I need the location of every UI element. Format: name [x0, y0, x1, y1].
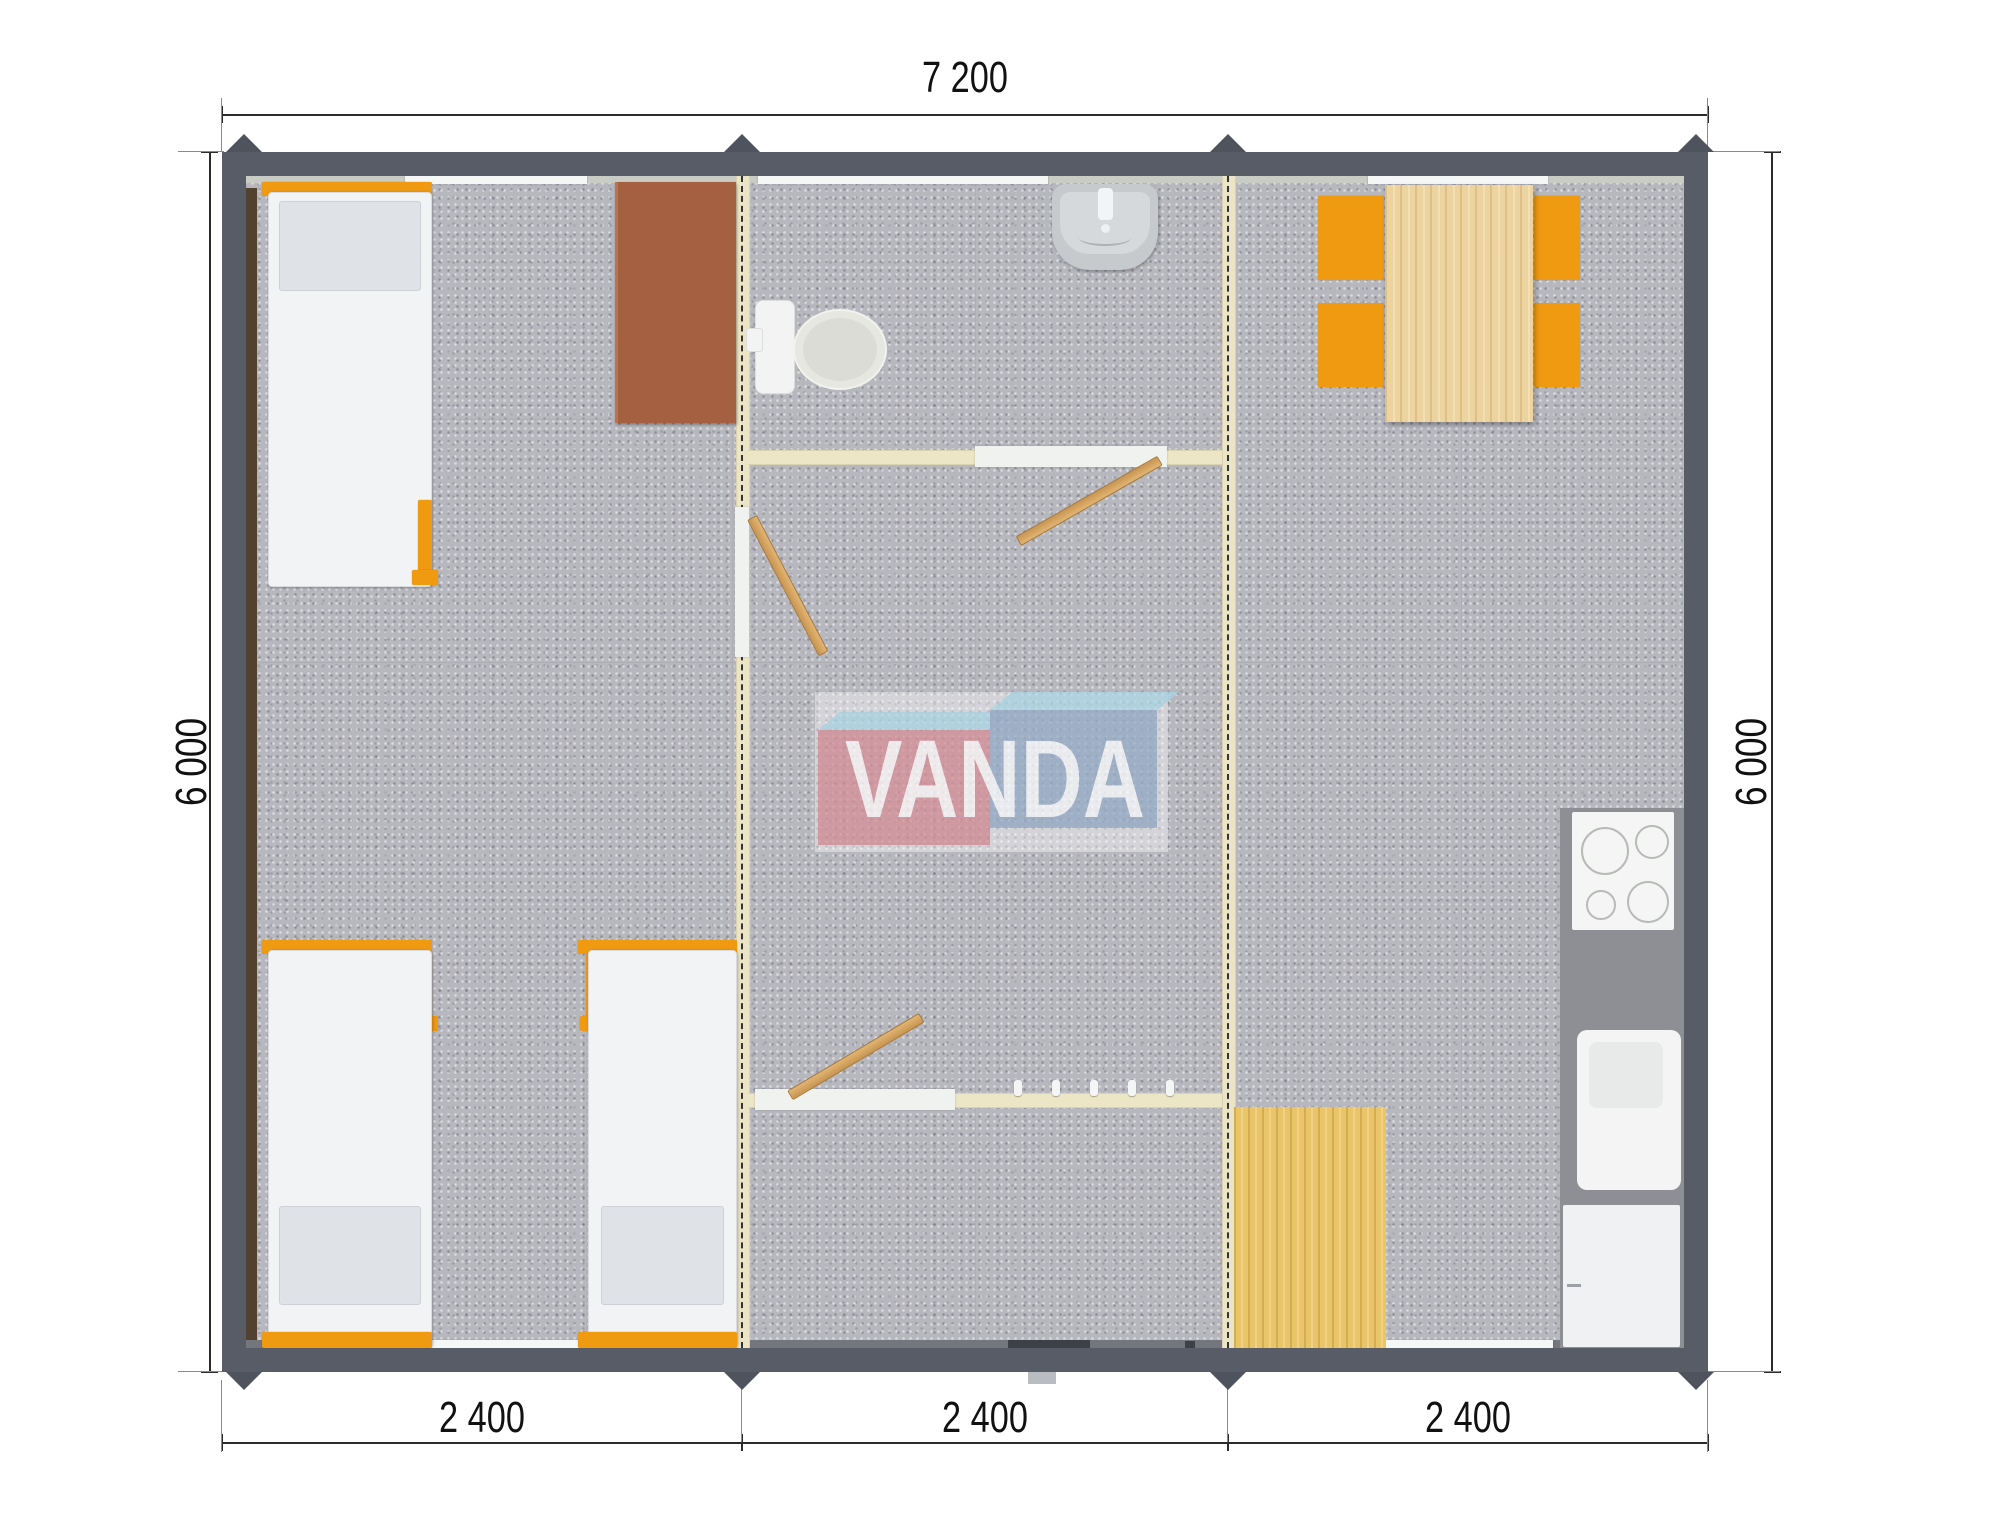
extension-line — [178, 151, 224, 152]
bed-frame-bar — [262, 1332, 432, 1348]
dimension-label-top: 7 200 — [887, 56, 1043, 100]
cabinet-handle — [1567, 1284, 1581, 1287]
fridge-cabinet — [1563, 1205, 1680, 1347]
module-joint-marker — [226, 134, 262, 152]
dimension-label-right: 6 000 — [1730, 682, 1774, 842]
divider-dash-line — [741, 176, 743, 1348]
dimension-label-left: 6 000 — [170, 682, 214, 842]
extension-line — [1707, 1380, 1708, 1452]
wood-floor-mat — [1234, 1107, 1386, 1348]
divider-dash-line — [1227, 176, 1229, 1348]
dimension-line-top — [222, 114, 1708, 116]
dining-table — [1385, 185, 1533, 422]
outer-wall-left — [222, 152, 246, 1372]
dining-chair — [1534, 196, 1580, 280]
bed-pillow — [279, 201, 421, 291]
bed-pillow — [279, 1206, 421, 1305]
window — [1368, 1340, 1553, 1348]
window — [405, 1340, 587, 1348]
cooktop — [1572, 812, 1674, 930]
bed-frame-foot — [412, 570, 438, 585]
toilet-bowl — [793, 309, 887, 390]
single-bed — [268, 192, 432, 587]
building-plan: VANDA — [222, 152, 1708, 1372]
threshold-mark — [1185, 1341, 1195, 1348]
outer-wall-top — [222, 152, 1708, 176]
dimension-label-bottom-3: 2 400 — [1406, 1396, 1531, 1440]
dimension-label-bottom-1: 2 400 — [420, 1396, 545, 1440]
left-wall-liner — [246, 188, 257, 1340]
dimension-line-bottom — [222, 1442, 1708, 1444]
coat-hook — [1014, 1080, 1022, 1096]
module-joint-marker — [1678, 1372, 1714, 1390]
module-joint-marker — [724, 134, 760, 152]
burner-icon — [1586, 890, 1616, 920]
bed-frame-bar — [418, 500, 432, 574]
vanda-logo: VANDA — [810, 685, 1185, 860]
module-joint-marker — [1210, 134, 1246, 152]
coat-hook — [1052, 1080, 1060, 1096]
faucet-icon — [1098, 188, 1113, 220]
coat-hook — [1128, 1080, 1136, 1096]
window — [758, 176, 1048, 184]
sink-basin — [1589, 1042, 1663, 1108]
logo-blue-box-top — [990, 692, 1179, 710]
toilet-seat — [803, 318, 877, 381]
floor-plan-screenshot: 7 200 2 400 2 400 2 400 6 000 6 000 — [0, 0, 2000, 1537]
burner-icon — [1627, 881, 1669, 923]
bed-pillow — [601, 1206, 724, 1305]
hall-door-opening — [755, 1089, 955, 1110]
wardrobe-desk — [615, 182, 736, 423]
bedroom-door-opening — [735, 507, 749, 657]
outer-wall-bottom — [222, 1348, 1708, 1372]
single-bed — [588, 950, 737, 1347]
window — [405, 176, 587, 184]
dining-chair — [1318, 303, 1384, 387]
burner-icon — [1635, 825, 1669, 859]
module-joint-marker — [1210, 1372, 1246, 1390]
outer-wall-right — [1684, 152, 1708, 1372]
bed-frame-bar — [578, 1332, 737, 1348]
dimension-label-bottom-2: 2 400 — [923, 1396, 1048, 1440]
extension-line — [221, 1380, 222, 1452]
coat-hook — [1090, 1080, 1098, 1096]
extension-line — [221, 98, 222, 152]
module-joint-marker — [226, 1372, 262, 1390]
window — [1368, 176, 1548, 184]
module-joint-marker — [724, 1372, 760, 1390]
bathroom-door-opening — [975, 446, 1167, 467]
dining-chair — [1318, 196, 1384, 280]
dining-chair — [1534, 303, 1580, 387]
toilet-paper-holder — [746, 328, 763, 352]
entrance-step — [1028, 1372, 1056, 1384]
basin-drain — [1079, 230, 1131, 246]
single-bed — [268, 950, 432, 1347]
coat-hook — [1166, 1080, 1174, 1096]
wash-basin — [1052, 184, 1158, 270]
extension-line — [178, 1371, 224, 1372]
burner-icon — [1581, 827, 1629, 875]
kitchen-sink — [1577, 1030, 1681, 1190]
module-joint-marker — [1678, 134, 1714, 152]
logo-text: VANDA — [845, 718, 1145, 841]
